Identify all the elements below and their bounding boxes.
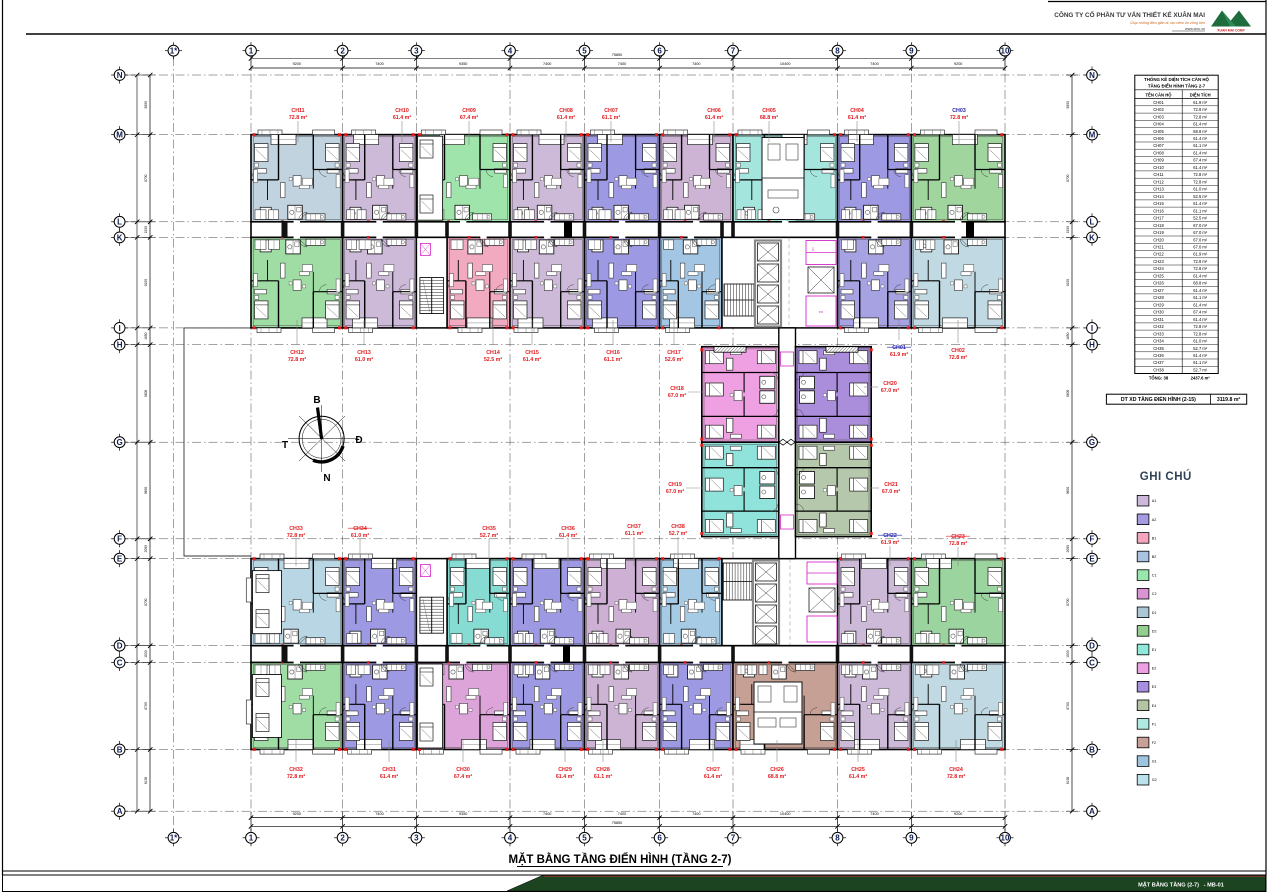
svg-text:9100: 9100 [144, 279, 148, 287]
svg-text:61.4 m²: 61.4 m² [1193, 353, 1208, 358]
svg-text:61.4 m²: 61.4 m² [523, 357, 541, 363]
svg-text:72.8 m²: 72.8 m² [289, 115, 307, 121]
svg-text:CH35: CH35 [482, 526, 496, 532]
svg-text:9600: 9600 [1066, 487, 1070, 495]
svg-text:1: 1 [249, 834, 254, 843]
svg-text:67.0 m²: 67.0 m² [1193, 230, 1208, 235]
svg-text:8: 8 [835, 834, 840, 843]
svg-text:10400: 10400 [780, 812, 791, 816]
svg-text:Đ: Đ [355, 435, 362, 446]
svg-text:CH31: CH31 [1153, 317, 1164, 322]
svg-text:E1: E1 [1152, 648, 1157, 652]
svg-text:72.8 m²: 72.8 m² [949, 541, 967, 547]
svg-text:6: 6 [657, 834, 662, 843]
svg-text:CH19: CH19 [668, 482, 682, 488]
svg-text:CH16: CH16 [1153, 208, 1164, 213]
svg-text:CH26: CH26 [770, 767, 784, 773]
svg-text:CH36: CH36 [561, 526, 575, 532]
svg-text:CH16: CH16 [606, 350, 620, 356]
svg-text:61.4 m²: 61.4 m² [1193, 201, 1208, 206]
svg-text:52.7 m²: 52.7 m² [1193, 368, 1208, 373]
svg-text:C2: C2 [1152, 592, 1157, 596]
svg-text:52.7 m²: 52.7 m² [480, 533, 498, 539]
svg-text:CH08: CH08 [1153, 151, 1164, 156]
svg-text:CH25: CH25 [851, 767, 865, 773]
svg-text:CH24: CH24 [1153, 266, 1164, 271]
svg-text:9200: 9200 [293, 62, 301, 66]
svg-text:DT XD TẦNG ĐIỂN HÌNH (2-15): DT XD TẦNG ĐIỂN HÌNH (2-15) [1121, 395, 1196, 403]
svg-text:D2: D2 [1152, 629, 1157, 633]
svg-text:CH09: CH09 [462, 108, 476, 114]
svg-text:72.8 m²: 72.8 m² [950, 115, 968, 121]
svg-text:E2: E2 [1152, 667, 1157, 671]
svg-text:KT: KT [811, 247, 815, 251]
svg-text:K: K [1089, 233, 1095, 242]
svg-text:T: T [282, 440, 288, 451]
svg-text:61.4 m²: 61.4 m² [380, 774, 398, 780]
svg-text:67.4 m²: 67.4 m² [460, 115, 478, 121]
svg-text:D1: D1 [1152, 611, 1157, 615]
svg-text:67.0 m²: 67.0 m² [668, 393, 686, 399]
svg-text:2000: 2000 [144, 545, 148, 553]
svg-text:K: K [117, 233, 123, 242]
svg-text:CH38: CH38 [1153, 368, 1164, 373]
svg-text:10: 10 [1001, 834, 1010, 843]
svg-text:N: N [1089, 71, 1095, 80]
svg-text:CH07: CH07 [604, 108, 618, 114]
svg-text:2000: 2000 [1066, 545, 1070, 553]
svg-text:CH03: CH03 [1153, 114, 1164, 119]
svg-text:61.0 m²: 61.0 m² [1193, 187, 1208, 192]
svg-text:GHI CHÚ: GHI CHÚ [1140, 470, 1192, 483]
svg-text:CH01: CH01 [892, 345, 906, 351]
svg-text:CH37: CH37 [627, 524, 641, 530]
svg-text:7400: 7400 [618, 812, 626, 816]
svg-text:B: B [1089, 745, 1095, 754]
svg-text:CH14: CH14 [1153, 194, 1164, 199]
svg-text:CH18: CH18 [670, 386, 684, 392]
svg-text:A: A [1089, 807, 1095, 816]
svg-text:7400: 7400 [543, 62, 551, 66]
svg-text:61.9 m²: 61.9 m² [1193, 252, 1208, 257]
svg-text:A: A [117, 807, 123, 816]
svg-text:10: 10 [1001, 47, 1010, 56]
svg-text:CH18: CH18 [1153, 223, 1164, 228]
svg-text:8700: 8700 [144, 702, 148, 710]
svg-text:CH37: CH37 [1153, 360, 1164, 365]
svg-text:CH01: CH01 [1153, 100, 1164, 105]
svg-text:CH06: CH06 [707, 108, 721, 114]
svg-text:B: B [313, 395, 320, 406]
svg-text:CH15: CH15 [525, 350, 539, 356]
svg-text:72.8 m²: 72.8 m² [1193, 114, 1208, 119]
svg-text:CH36: CH36 [1153, 353, 1164, 358]
svg-text:72.8 m²: 72.8 m² [949, 355, 967, 361]
svg-text:61.4 m²: 61.4 m² [1193, 302, 1208, 307]
svg-text:www.xmc.vn: www.xmc.vn [1185, 27, 1205, 31]
svg-text:E4: E4 [1152, 704, 1157, 708]
svg-text:52.5 m²: 52.5 m² [1193, 194, 1208, 199]
svg-text:CH11: CH11 [1153, 172, 1164, 177]
svg-text:4: 4 [508, 834, 513, 843]
svg-text:9350: 9350 [459, 812, 467, 816]
svg-text:72.8 m²: 72.8 m² [1193, 107, 1208, 112]
svg-text:CH31: CH31 [382, 767, 396, 773]
svg-text:67.0 m²: 67.0 m² [881, 388, 899, 394]
svg-text:9200: 9200 [954, 812, 962, 816]
svg-text:E3: E3 [1152, 685, 1157, 689]
svg-text:61.4 m²: 61.4 m² [1193, 151, 1208, 156]
svg-text:CH20: CH20 [1153, 237, 1164, 242]
svg-text:1650: 1650 [144, 332, 148, 340]
svg-text:72.8 m²: 72.8 m² [287, 774, 305, 780]
svg-text:G: G [116, 438, 122, 447]
svg-text:CH12: CH12 [290, 350, 304, 356]
svg-text:7400: 7400 [618, 62, 626, 66]
svg-text:MẶT BẰNG TẦNG (2-7) - MB-01: MẶT BẰNG TẦNG (2-7) - MB-01 [1138, 880, 1224, 888]
svg-text:1650: 1650 [1066, 332, 1070, 340]
svg-text:7400: 7400 [692, 62, 700, 66]
svg-text:G2: G2 [1152, 778, 1157, 782]
svg-text:67.4 m²: 67.4 m² [454, 774, 472, 780]
svg-text:7400: 7400 [375, 62, 383, 66]
svg-text:1*: 1* [170, 834, 178, 843]
svg-text:CH19: CH19 [1153, 230, 1164, 235]
svg-text:61.4 m²: 61.4 m² [1193, 288, 1208, 293]
svg-text:CH24: CH24 [949, 767, 963, 773]
svg-text:E: E [117, 555, 123, 564]
svg-text:5: 5 [582, 834, 587, 843]
svg-text:67.4 m²: 67.4 m² [1193, 158, 1208, 163]
svg-text:H: H [117, 341, 123, 350]
svg-text:61.4 m²: 61.4 m² [849, 774, 867, 780]
svg-text:D: D [1089, 642, 1095, 651]
svg-text:CH30: CH30 [456, 767, 470, 773]
svg-text:72.8 m²: 72.8 m² [1193, 259, 1208, 264]
svg-text:8700: 8700 [1066, 174, 1070, 182]
svg-text:7400: 7400 [692, 812, 700, 816]
svg-text:CH32: CH32 [289, 767, 303, 773]
svg-text:67.0 m²: 67.0 m² [666, 489, 684, 495]
svg-text:5900: 5900 [144, 101, 148, 109]
svg-text:61.1 m²: 61.1 m² [1193, 360, 1208, 365]
svg-text:2: 2 [340, 834, 345, 843]
svg-text:75850: 75850 [612, 53, 623, 57]
svg-text:G1: G1 [1152, 760, 1157, 764]
svg-text:CH27: CH27 [706, 767, 720, 773]
svg-text:9200: 9200 [293, 812, 301, 816]
svg-text:CH22: CH22 [1153, 252, 1164, 257]
svg-text:72.8 m²: 72.8 m² [288, 357, 306, 363]
svg-text:61.4 m²: 61.4 m² [559, 533, 577, 539]
svg-text:CH35: CH35 [1153, 346, 1164, 351]
svg-text:61.1 m²: 61.1 m² [1193, 295, 1208, 300]
svg-text:CH33: CH33 [289, 526, 303, 532]
svg-text:61.4 m²: 61.4 m² [1193, 273, 1208, 278]
svg-text:10400: 10400 [780, 62, 791, 66]
svg-text:5: 5 [582, 47, 587, 56]
svg-text:61.0 m²: 61.0 m² [355, 357, 373, 363]
svg-text:CH11: CH11 [291, 108, 304, 114]
svg-text:TỔNG: 38: TỔNG: 38 [1149, 376, 1169, 381]
svg-text:52.6 m²: 52.6 m² [665, 357, 683, 363]
svg-text:F: F [1090, 535, 1095, 544]
svg-text:3: 3 [414, 47, 419, 56]
svg-text:CH21: CH21 [1153, 245, 1164, 250]
svg-text:CH06: CH06 [1153, 136, 1164, 141]
svg-text:CH03: CH03 [952, 108, 966, 114]
svg-text:4: 4 [508, 47, 513, 56]
svg-text:N: N [117, 71, 123, 80]
svg-text:L: L [117, 218, 122, 227]
svg-text:L: L [1090, 218, 1095, 227]
svg-text:61.4 m²: 61.4 m² [1193, 165, 1208, 170]
svg-text:CH26: CH26 [1153, 281, 1164, 286]
svg-text:61.4 m²: 61.4 m² [1193, 122, 1208, 127]
svg-text:CH28: CH28 [1153, 295, 1164, 300]
svg-text:CH23: CH23 [951, 534, 965, 540]
svg-text:1530: 1530 [1066, 226, 1070, 234]
svg-text:67.4 m²: 67.4 m² [1193, 310, 1208, 315]
svg-text:7: 7 [731, 834, 736, 843]
svg-text:CH34: CH34 [353, 526, 367, 532]
svg-text:7400: 7400 [375, 812, 383, 816]
svg-text:7400: 7400 [870, 62, 878, 66]
svg-text:68.8 m²: 68.8 m² [1193, 281, 1208, 286]
svg-text:F1: F1 [1152, 722, 1156, 726]
svg-text:CH13: CH13 [357, 350, 371, 356]
svg-text:9600: 9600 [144, 487, 148, 495]
svg-text:7400: 7400 [543, 812, 551, 816]
svg-text:3: 3 [414, 834, 419, 843]
svg-text:XUAN MAI CORP: XUAN MAI CORP [1217, 29, 1245, 33]
svg-text:67.0 m²: 67.0 m² [1193, 223, 1208, 228]
svg-text:72.8 m²: 72.8 m² [1193, 331, 1208, 336]
svg-text:61.9 m²: 61.9 m² [1193, 100, 1208, 105]
svg-text:CH29: CH29 [1153, 302, 1164, 307]
svg-text:9350: 9350 [459, 62, 467, 66]
svg-text:CH28: CH28 [596, 767, 610, 773]
svg-text:8700: 8700 [1066, 598, 1070, 606]
svg-text:C: C [117, 658, 123, 667]
svg-text:A1: A1 [1152, 499, 1157, 503]
svg-text:CH02: CH02 [1153, 107, 1164, 112]
svg-text:CH07: CH07 [1153, 143, 1164, 148]
svg-text:61.1 m²: 61.1 m² [602, 115, 620, 121]
svg-text:61.9 m²: 61.9 m² [881, 540, 899, 546]
svg-text:72.8 m²: 72.8 m² [1193, 266, 1208, 271]
svg-text:61.4 m²: 61.4 m² [556, 774, 574, 780]
svg-text:CH17: CH17 [1153, 216, 1164, 221]
svg-text:1*: 1* [170, 47, 178, 56]
svg-text:CH30: CH30 [1153, 310, 1164, 315]
svg-text:52.7 m²: 52.7 m² [1193, 346, 1208, 351]
svg-text:6: 6 [657, 47, 662, 56]
svg-text:C1: C1 [1152, 574, 1157, 578]
svg-text:DIỆN TÍCH: DIỆN TÍCH [1190, 92, 1211, 97]
svg-text:52.5 m²: 52.5 m² [1193, 216, 1208, 221]
svg-text:61.4 m²: 61.4 m² [705, 115, 723, 121]
svg-text:B1: B1 [1152, 536, 1157, 540]
svg-text:2: 2 [340, 47, 345, 56]
svg-text:67.0 m²: 67.0 m² [882, 489, 900, 495]
svg-text:TẦNG ĐIỂN HÌNH TẦNG 2-7: TẦNG ĐIỂN HÌNH TẦNG 2-7 [1148, 83, 1206, 88]
svg-text:9100: 9100 [1066, 279, 1070, 287]
svg-text:CH17: CH17 [667, 350, 681, 356]
svg-text:CH04: CH04 [1153, 122, 1164, 127]
svg-text:CH14: CH14 [486, 350, 500, 356]
svg-text:68.8 m²: 68.8 m² [768, 774, 786, 780]
svg-text:F2: F2 [1152, 741, 1156, 745]
svg-text:B: B [117, 745, 123, 754]
svg-text:CH08: CH08 [559, 108, 573, 114]
svg-text:6150: 6150 [1066, 777, 1070, 785]
svg-text:CH12: CH12 [1153, 179, 1164, 184]
svg-text:9800: 9800 [144, 390, 148, 398]
svg-text:THỐNG KÊ DIỆN TÍCH CĂN HỘ: THỐNG KÊ DIỆN TÍCH CĂN HỘ [1144, 77, 1209, 82]
svg-text:1530: 1530 [1066, 650, 1070, 658]
svg-text:52.5 m²: 52.5 m² [484, 357, 502, 363]
svg-text:72.8 m²: 72.8 m² [947, 774, 965, 780]
svg-text:CH34: CH34 [1153, 339, 1164, 344]
svg-text:9800: 9800 [1066, 390, 1070, 398]
svg-text:9200: 9200 [954, 62, 962, 66]
svg-text:6150: 6150 [144, 777, 148, 785]
svg-text:9: 9 [909, 834, 914, 843]
svg-text:N: N [323, 473, 330, 484]
svg-text:CH10: CH10 [1153, 165, 1164, 170]
svg-text:CH15: CH15 [1153, 201, 1164, 206]
svg-text:I: I [118, 324, 120, 333]
svg-text:72.8 m²: 72.8 m² [1193, 179, 1208, 184]
svg-text:F: F [117, 535, 122, 544]
svg-text:61.4 m²: 61.4 m² [1193, 136, 1208, 141]
svg-text:61.0 m²: 61.0 m² [1193, 339, 1208, 344]
svg-text:A2: A2 [1152, 518, 1157, 522]
svg-text:72.8 m²: 72.8 m² [1193, 172, 1208, 177]
svg-text:1530: 1530 [144, 226, 148, 234]
svg-text:5900: 5900 [1066, 101, 1070, 109]
svg-text:3119.8 m²: 3119.8 m² [1217, 397, 1241, 403]
svg-text:61.4 m²: 61.4 m² [1193, 317, 1208, 322]
svg-text:CH09: CH09 [1153, 158, 1164, 163]
svg-text:CH13: CH13 [1153, 187, 1164, 192]
svg-text:H: H [1089, 341, 1095, 350]
svg-text:CH05: CH05 [762, 108, 776, 114]
svg-text:CH38: CH38 [671, 524, 685, 530]
svg-text:CH21: CH21 [884, 482, 898, 488]
svg-text:CH27: CH27 [1153, 288, 1164, 293]
svg-text:8700: 8700 [144, 598, 148, 606]
svg-text:CH05: CH05 [1153, 129, 1164, 134]
svg-text:72.8 m²: 72.8 m² [287, 533, 305, 539]
svg-text:M: M [1089, 131, 1096, 140]
svg-text:75850: 75850 [612, 821, 623, 825]
svg-text:68.8 m²: 68.8 m² [1193, 129, 1208, 134]
svg-text:8: 8 [835, 47, 840, 56]
svg-text:2437.6 m²: 2437.6 m² [1191, 376, 1211, 381]
svg-text:CH20: CH20 [883, 381, 897, 387]
svg-text:CH25: CH25 [1153, 273, 1164, 278]
svg-text:61.1 m²: 61.1 m² [1193, 208, 1208, 213]
svg-text:M: M [116, 131, 123, 140]
svg-text:61.1 m²: 61.1 m² [625, 531, 643, 537]
svg-text:61.4 m²: 61.4 m² [393, 115, 411, 121]
svg-text:I: I [1091, 324, 1093, 333]
svg-text:8700: 8700 [1066, 702, 1070, 710]
svg-text:61.1 m²: 61.1 m² [594, 774, 612, 780]
svg-text:68.8 m²: 68.8 m² [760, 115, 778, 121]
svg-text:72.8 m²: 72.8 m² [1193, 324, 1208, 329]
svg-text:E: E [1089, 555, 1095, 564]
svg-text:D: D [117, 642, 123, 651]
svg-text:CH22: CH22 [883, 533, 897, 539]
svg-text:CH23: CH23 [1153, 259, 1164, 264]
svg-text:TÊN CĂN HỘ: TÊN CĂN HỘ [1145, 92, 1172, 97]
svg-text:C: C [1089, 658, 1095, 667]
svg-text:7400: 7400 [870, 812, 878, 816]
svg-text:1530: 1530 [144, 650, 148, 658]
svg-text:G: G [1089, 438, 1095, 447]
svg-text:61.4 m²: 61.4 m² [557, 115, 575, 121]
svg-text:MẶT BẰNG TẦNG ĐIỂN HÌNH (TẦNG: MẶT BẰNG TẦNG ĐIỂN HÌNH (TẦNG 2-7) [509, 853, 732, 866]
svg-text:67.0 m²: 67.0 m² [1193, 237, 1208, 242]
svg-text:61.4 m²: 61.4 m² [704, 774, 722, 780]
svg-text:CH02: CH02 [951, 348, 965, 354]
svg-text:67.0 m²: 67.0 m² [1193, 245, 1208, 250]
svg-text:CH33: CH33 [1153, 331, 1164, 336]
svg-text:61.0 m²: 61.0 m² [351, 533, 369, 539]
svg-text:CH10: CH10 [395, 108, 409, 114]
svg-text:61.9 m²: 61.9 m² [890, 352, 908, 358]
svg-text:CH29: CH29 [558, 767, 572, 773]
svg-text:61.1 m²: 61.1 m² [1193, 143, 1208, 148]
svg-text:Giúp những điều giản dị, tạo n: Giúp những điều giản dị, tạo niềm tin vữ… [1130, 21, 1205, 25]
svg-text:8700: 8700 [144, 174, 148, 182]
svg-text:52.7 m²: 52.7 m² [669, 531, 687, 537]
svg-text:B2: B2 [1152, 555, 1157, 559]
svg-text:CH04: CH04 [850, 108, 864, 114]
svg-text:CH32: CH32 [1153, 324, 1164, 329]
svg-text:61.1 m²: 61.1 m² [604, 357, 622, 363]
svg-text:7: 7 [731, 47, 736, 56]
svg-text:61.4 m²: 61.4 m² [848, 115, 866, 121]
svg-text:1: 1 [249, 47, 254, 56]
svg-text:9: 9 [909, 47, 914, 56]
